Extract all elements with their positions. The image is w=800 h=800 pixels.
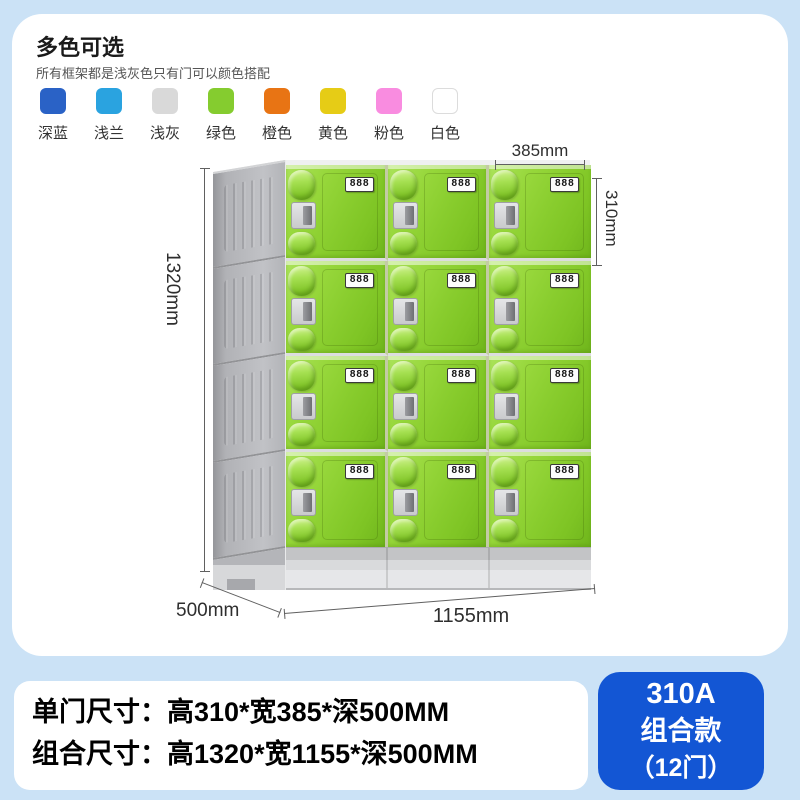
door-handle — [494, 298, 519, 325]
locker-door: 888 — [489, 165, 591, 261]
side-panel-module — [213, 354, 285, 463]
dimension-line-door-height — [596, 178, 597, 266]
door-top-chamfer — [489, 165, 591, 169]
color-swatch — [208, 88, 234, 114]
door-handle-slot — [303, 302, 312, 321]
locker-base — [286, 547, 591, 590]
door-hinge-pill — [491, 170, 518, 200]
door-panel-outline — [525, 173, 584, 251]
model-number: 310A — [646, 676, 715, 713]
door-hinge-pill — [390, 232, 417, 255]
side-panel-module — [213, 451, 285, 560]
door-hinge-pill — [491, 423, 518, 446]
side-panel-ribs — [224, 368, 276, 446]
product-detail-page: { "color_section": { "title": "多色可选", "s… — [0, 0, 800, 800]
color-swatch — [320, 88, 346, 114]
locker-door: 888 — [286, 261, 388, 357]
door-hinge-pill — [288, 232, 315, 255]
door-top-chamfer — [489, 261, 591, 265]
door-handle — [291, 202, 316, 229]
door-hinge-pill — [491, 328, 518, 351]
door-handle-slot — [506, 397, 515, 416]
door-handle-slot — [405, 206, 414, 225]
model-type: 组合款 — [641, 713, 722, 750]
color-option-light-gray: 浅灰 — [152, 88, 178, 143]
color-option-dark-blue: 深蓝 — [40, 88, 66, 143]
door-top-chamfer — [286, 356, 385, 360]
locker-door-grid: 888888888888888888888888888888888888 — [286, 165, 591, 547]
locker-door: 888 — [489, 452, 591, 548]
door-handle-slot — [405, 493, 414, 512]
door-hinge-pill — [288, 519, 315, 542]
door-hinge-pill — [491, 361, 518, 391]
combined-size-text: 组合尺寸：高1320*宽1155*深500MM — [32, 733, 588, 775]
color-swatch — [432, 88, 458, 114]
door-panel-outline — [424, 364, 480, 442]
door-hinge-pill — [390, 457, 417, 487]
locker-door: 888 — [286, 452, 388, 548]
color-option-yellow: 黄色 — [320, 88, 346, 143]
side-panel-module — [213, 160, 285, 269]
door-hinge-pill — [390, 423, 417, 446]
color-swatch — [96, 88, 122, 114]
locker-door: 888 — [388, 261, 490, 357]
model-door-count: （12门） — [630, 750, 733, 787]
door-handle — [393, 202, 418, 229]
locker-door: 888 — [388, 356, 490, 452]
side-panel-module — [213, 257, 285, 366]
door-panel-outline — [322, 269, 378, 347]
door-top-chamfer — [489, 452, 591, 456]
door-hinge-pill — [491, 232, 518, 255]
door-panel-outline — [525, 364, 584, 442]
door-top-chamfer — [286, 452, 385, 456]
door-top-chamfer — [286, 165, 385, 169]
door-hinge-pill — [288, 170, 315, 200]
color-swatch — [40, 88, 66, 114]
locker-front-face: 888888888888888888888888888888888888 — [285, 160, 590, 590]
door-panel-outline — [322, 173, 378, 251]
door-hinge-pill — [491, 519, 518, 542]
locker-door: 888 — [286, 165, 388, 261]
base-seam — [488, 548, 490, 588]
locker-door: 888 — [388, 165, 490, 261]
locker-side-panel — [213, 160, 285, 560]
door-hinge-pill — [390, 170, 417, 200]
door-top-chamfer — [286, 261, 385, 265]
door-panel-outline — [322, 364, 378, 442]
color-swatch-row: 深蓝 浅兰 浅灰 绿色 橙色 黄色 粉色 白色 — [40, 88, 458, 143]
door-handle-slot — [303, 397, 312, 416]
side-panel-ribs — [224, 465, 276, 543]
door-hinge-pill — [288, 361, 315, 391]
color-option-orange: 橙色 — [264, 88, 290, 143]
door-top-chamfer — [388, 261, 487, 265]
color-swatch — [152, 88, 178, 114]
door-handle-slot — [303, 206, 312, 225]
door-handle — [494, 489, 519, 516]
dimension-label-depth: 500mm — [176, 600, 239, 622]
locker-foot — [227, 579, 255, 590]
door-handle-slot — [405, 397, 414, 416]
color-swatch-label: 白色 — [430, 122, 460, 143]
door-handle — [393, 393, 418, 420]
door-handle — [393, 489, 418, 516]
door-panel-outline — [424, 173, 480, 251]
spec-text-panel: 单门尺寸：高310*宽385*深500MM 组合尺寸：高1320*宽1155*深… — [14, 681, 588, 790]
door-hinge-pill — [491, 457, 518, 487]
door-handle — [291, 393, 316, 420]
dimension-line-door-width — [495, 164, 585, 165]
door-handle — [291, 489, 316, 516]
dimension-label-door-width: 385mm — [495, 141, 585, 161]
door-panel-outline — [525, 269, 584, 347]
locker-door: 888 — [286, 356, 388, 452]
color-option-light-blue: 浅兰 — [96, 88, 122, 143]
dimension-line-total-height — [204, 168, 205, 572]
locker-door: 888 — [489, 356, 591, 452]
color-swatch-label: 粉色 — [374, 122, 404, 143]
door-hinge-pill — [288, 328, 315, 351]
locker-door: 888 — [489, 261, 591, 357]
door-hinge-pill — [288, 457, 315, 487]
door-handle-slot — [506, 493, 515, 512]
door-hinge-pill — [288, 266, 315, 296]
color-options-subtitle: 所有框架都是浅灰色只有门可以颜色搭配 — [36, 63, 270, 82]
door-top-chamfer — [388, 165, 487, 169]
color-option-white: 白色 — [432, 88, 458, 143]
color-option-pink: 粉色 — [376, 88, 402, 143]
color-swatch-label: 绿色 — [206, 122, 236, 143]
door-hinge-pill — [390, 361, 417, 391]
locker-door: 888 — [388, 452, 490, 548]
door-hinge-pill — [288, 423, 315, 446]
color-option-green: 绿色 — [208, 88, 234, 143]
base-seam — [386, 548, 388, 588]
door-panel-outline — [525, 460, 584, 541]
dimension-label-total-height: 1320mm — [161, 252, 183, 326]
door-hinge-pill — [390, 266, 417, 296]
model-badge: 310A 组合款 （12门） — [598, 672, 764, 790]
color-swatch — [376, 88, 402, 114]
door-panel-outline — [322, 460, 378, 541]
color-swatch-label: 深蓝 — [38, 122, 68, 143]
dimension-label-total-width: 1155mm — [426, 605, 516, 628]
door-hinge-pill — [390, 328, 417, 351]
door-top-chamfer — [388, 356, 487, 360]
door-top-chamfer — [388, 452, 487, 456]
door-handle — [291, 298, 316, 325]
door-handle — [494, 393, 519, 420]
color-options-title: 多色可选 — [36, 30, 124, 62]
door-handle-slot — [405, 302, 414, 321]
side-panel-ribs — [224, 176, 276, 252]
door-handle — [494, 202, 519, 229]
dimension-label-door-height: 310mm — [601, 190, 621, 247]
side-panel-ribs — [224, 271, 276, 349]
door-top-chamfer — [489, 356, 591, 360]
door-hinge-pill — [491, 266, 518, 296]
door-handle — [393, 298, 418, 325]
color-swatch-label: 浅灰 — [150, 122, 180, 143]
door-handle-slot — [506, 302, 515, 321]
color-swatch — [264, 88, 290, 114]
door-handle-slot — [303, 493, 312, 512]
door-panel-outline — [424, 460, 480, 541]
door-hinge-pill — [390, 519, 417, 542]
door-handle-slot — [506, 206, 515, 225]
single-door-size-text: 单门尺寸：高310*宽385*深500MM — [32, 691, 588, 733]
color-swatch-label: 浅兰 — [94, 122, 124, 143]
door-panel-outline — [424, 269, 480, 347]
color-swatch-label: 黄色 — [318, 122, 348, 143]
color-swatch-label: 橙色 — [262, 122, 292, 143]
